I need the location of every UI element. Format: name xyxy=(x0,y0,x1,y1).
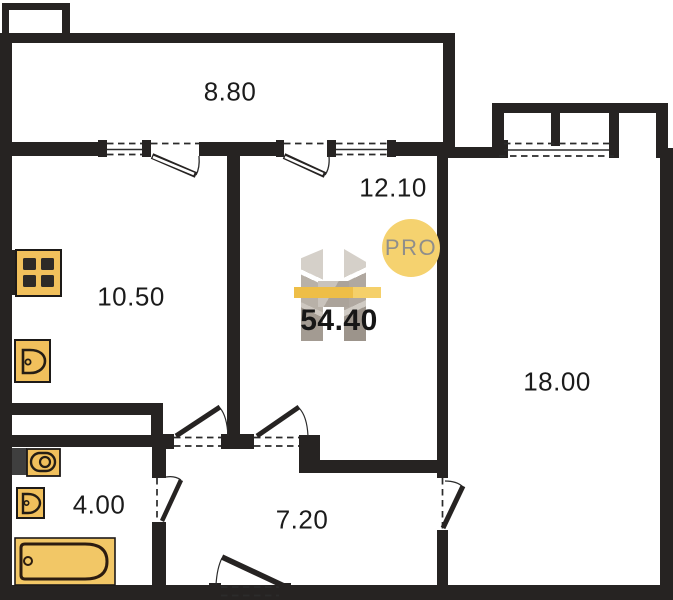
pro-badge-label: PRO xyxy=(385,235,437,261)
window-wall xyxy=(199,142,277,156)
window-glazing-line xyxy=(107,150,609,151)
toilet-icon xyxy=(17,488,44,518)
duct-wall xyxy=(151,403,163,447)
room18-top-wall xyxy=(437,147,503,158)
door-arc xyxy=(216,558,222,585)
entry-door-leaf xyxy=(222,557,284,586)
pro-badge: PRO xyxy=(382,219,440,277)
total-area-label: 54.40 xyxy=(300,304,378,338)
door-arc xyxy=(220,408,228,436)
window-frame xyxy=(142,140,151,157)
room12-area-label: 12.10 xyxy=(359,173,427,204)
washing-machine-icon xyxy=(12,448,60,476)
balcony-door-leaf xyxy=(153,157,194,174)
entry-door-frame xyxy=(209,583,221,599)
bathroom-right-wall xyxy=(152,522,166,585)
balcony-door-leaf xyxy=(285,157,323,174)
window-wall xyxy=(0,142,100,156)
vent-shaft xyxy=(2,3,68,10)
hallway-area-label: 7.20 xyxy=(276,505,329,536)
room18-left-wall xyxy=(437,530,448,587)
hall-top-wall xyxy=(163,434,174,449)
bathroom-area-label: 4.00 xyxy=(73,490,126,521)
room18-door-leaf xyxy=(443,486,463,528)
left-wall xyxy=(0,33,12,600)
sink-icon xyxy=(15,340,50,382)
bay-divider xyxy=(551,113,560,146)
balcony-top-wall xyxy=(7,33,455,43)
kitchen-door-leaf xyxy=(176,407,220,436)
stove-icon xyxy=(12,250,61,296)
door-arc xyxy=(299,408,308,436)
bathroom-door-leaf xyxy=(162,480,181,521)
balcony-right-wall xyxy=(443,33,455,156)
window-frame xyxy=(327,140,336,157)
balcony-area-label: 8.80 xyxy=(204,77,257,108)
kitchen-room12-wall xyxy=(227,156,240,448)
hall-top-wall xyxy=(221,434,254,449)
window-wall xyxy=(395,142,443,156)
watermark-logo-bar xyxy=(294,287,381,298)
room12-bottom-wall xyxy=(310,460,443,473)
bay-top-wall xyxy=(492,103,668,113)
kitchen-area-label: 10.50 xyxy=(97,282,165,313)
door-arc xyxy=(166,477,181,480)
right-wall xyxy=(660,148,673,600)
window-frame xyxy=(98,140,107,157)
kitchen-bottom-wall xyxy=(0,403,163,415)
window-frame xyxy=(276,140,284,157)
bathroom-right-wall xyxy=(152,447,166,478)
room18-left-wall xyxy=(437,158,448,478)
room18-area-label: 18.00 xyxy=(523,367,591,398)
window-frame xyxy=(387,140,396,157)
floor-plan: PRO 8.80 12.10 10.50 18.00 4.00 7.20 54.… xyxy=(0,0,673,600)
room12-door-leaf xyxy=(257,407,299,436)
bathroom-top-wall xyxy=(0,435,163,447)
bathtub-icon xyxy=(15,538,115,585)
bottom-wall xyxy=(0,585,673,600)
